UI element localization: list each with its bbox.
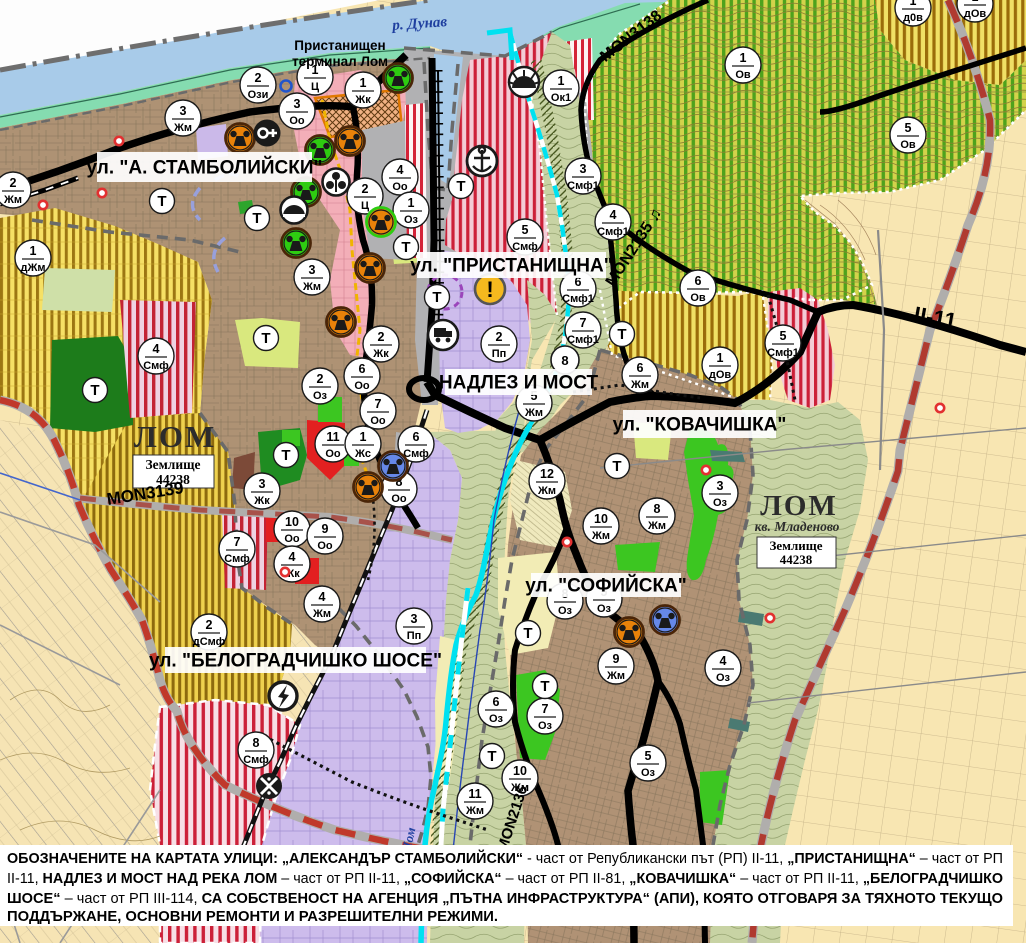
svg-text:Оо: Оо [354, 380, 370, 392]
svg-text:5: 5 [645, 749, 652, 763]
svg-text:2: 2 [362, 182, 369, 196]
svg-text:Т: Т [261, 330, 270, 347]
svg-text:Оз: Оз [538, 720, 553, 732]
svg-text:6: 6 [637, 361, 644, 375]
svg-text:Ц: Ц [311, 81, 319, 93]
svg-text:Жк: Жк [354, 94, 371, 106]
svg-text:1: 1 [360, 76, 367, 90]
svg-text:Смф1: Смф1 [567, 334, 599, 346]
svg-text:8: 8 [253, 736, 260, 750]
svg-text:дОв: дОв [709, 369, 732, 381]
svg-text:4: 4 [153, 342, 160, 356]
svg-text:3: 3 [259, 477, 266, 491]
svg-text:Т: Т [612, 458, 621, 475]
svg-text:Оз: Оз [313, 390, 328, 402]
svg-text:Смф: Смф [224, 553, 250, 565]
svg-text:Смф1: Смф1 [567, 180, 599, 192]
svg-text:Т: Т [281, 447, 290, 464]
svg-text:ул. "А. СТАМБОЛИЙСКИ": ул. "А. СТАМБОЛИЙСКИ" [86, 156, 322, 178]
svg-text:1: 1 [408, 196, 415, 210]
svg-text:Жм: Жм [302, 281, 321, 293]
svg-text:д0в: д0в [903, 12, 923, 24]
svg-text:Землище: Землище [145, 457, 200, 472]
svg-text:Жк: Жк [372, 348, 389, 360]
svg-text:дСмф: дСмф [193, 636, 226, 648]
svg-text:Оз: Оз [489, 713, 504, 725]
svg-text:Пп: Пп [492, 348, 507, 360]
svg-text:Оо: Оо [392, 181, 408, 193]
svg-text:5: 5 [780, 329, 787, 343]
svg-text:Оо: Оо [370, 415, 386, 427]
svg-text:ул. "БЕЛОГРАДЧИШКО ШОСЕ": ул. "БЕЛОГРАДЧИШКО ШОСЕ" [149, 650, 442, 671]
svg-text:2: 2 [317, 372, 324, 386]
svg-text:ОБОЗНАЧЕНИТЕ НА КАРТАТА УЛИЦИ:: ОБОЗНАЧЕНИТЕ НА КАРТАТА УЛИЦИ: „АЛЕКСАНД… [7, 849, 1003, 867]
svg-text:ШОСЕ“ – част от РП III-114, СА: ШОСЕ“ – част от РП III-114, СА СОБСТВЕНО… [7, 891, 1003, 907]
svg-text:Оо: Оо [289, 115, 305, 127]
svg-text:Жм: Жм [606, 670, 625, 682]
svg-text:Жм: Жм [173, 122, 192, 134]
svg-text:Т: Т [523, 625, 532, 642]
svg-text:Жм: Жм [591, 530, 610, 542]
svg-text:ул. "СОФИЙСКА": ул. "СОФИЙСКА" [525, 574, 687, 596]
svg-text:!: ! [486, 277, 493, 302]
svg-text:Смф1: Смф1 [767, 347, 799, 359]
svg-text:5: 5 [522, 223, 529, 237]
svg-text:4: 4 [397, 163, 404, 177]
svg-text:2: 2 [10, 176, 17, 190]
svg-text:4: 4 [319, 590, 326, 604]
svg-text:1: 1 [30, 244, 37, 258]
svg-text:Пп: Пп [407, 630, 422, 642]
svg-text:Смф: Смф [243, 754, 269, 766]
svg-text:12: 12 [540, 467, 554, 481]
svg-text:1: 1 [972, 0, 979, 4]
svg-text:Смф: Смф [143, 360, 169, 372]
svg-text:Оо: Оо [317, 540, 333, 552]
svg-text:Оз: Оз [713, 497, 728, 509]
svg-text:Жм: Жм [537, 485, 556, 497]
svg-text:Т: Т [617, 326, 626, 343]
svg-text:7: 7 [542, 702, 549, 716]
svg-text:Смф1: Смф1 [562, 293, 594, 305]
svg-text:10: 10 [513, 764, 527, 778]
svg-text:8: 8 [654, 502, 661, 516]
svg-text:кв. Младеново: кв. Младеново [755, 519, 840, 534]
svg-text:Ов: Ов [690, 292, 706, 304]
svg-text:Оз: Оз [597, 603, 612, 615]
svg-text:Смф: Смф [512, 241, 538, 253]
svg-text:1: 1 [558, 74, 565, 88]
svg-text:2: 2 [206, 618, 213, 632]
svg-text:Жс: Жс [354, 448, 371, 460]
svg-text:1: 1 [910, 0, 917, 8]
svg-text:ул. "КОВАЧИШКА": ул. "КОВАЧИШКА" [613, 414, 787, 435]
svg-text:Оо: Оо [325, 448, 341, 460]
svg-text:II-11, НАДЛЕЗ И МОСТ НАД РЕКА: II-11, НАДЛЕЗ И МОСТ НАД РЕКА ЛОМ – част… [7, 869, 1003, 887]
svg-text:Ов: Ов [735, 69, 751, 81]
svg-text:Оз: Оз [404, 214, 419, 226]
svg-text:4: 4 [289, 550, 296, 564]
svg-text:Оз: Оз [558, 605, 573, 617]
svg-text:Т: Т [157, 193, 166, 210]
svg-text:Жк: Жк [253, 495, 270, 507]
svg-text:10: 10 [594, 512, 608, 526]
svg-text:Ок1: Ок1 [551, 92, 571, 104]
svg-text:Ози: Ози [248, 89, 269, 101]
svg-text:Жм: Жм [647, 520, 666, 532]
svg-text:Смф1: Смф1 [597, 226, 629, 238]
svg-text:3: 3 [580, 162, 587, 176]
svg-text:Жм: Жм [465, 805, 484, 817]
svg-text:ул. "ПРИСТАНИЩНА": ул. "ПРИСТАНИЩНА" [410, 255, 613, 276]
svg-text:Т: Т [432, 289, 441, 306]
svg-text:Землище: Землище [769, 538, 822, 553]
svg-text:6: 6 [413, 430, 420, 444]
svg-text:Смф: Смф [403, 448, 429, 460]
svg-text:Ов: Ов [900, 139, 916, 151]
svg-text:Жм: Жм [630, 379, 649, 391]
svg-text:1: 1 [360, 430, 367, 444]
svg-text:ЛОМ: ЛОМ [760, 490, 838, 522]
svg-text:11: 11 [326, 430, 339, 444]
svg-text:дОв: дОв [964, 8, 987, 20]
svg-text:2: 2 [378, 330, 385, 344]
svg-text:7: 7 [234, 535, 241, 549]
svg-text:4: 4 [720, 654, 727, 668]
svg-text:ПОДДЪРЖАНЕ, ОСНОВНИ РЕМОНТИ И: ПОДДЪРЖАНЕ, ОСНОВНИ РЕМОНТИ И РАЗРЕШИТЕЛ… [7, 909, 498, 925]
svg-text:3: 3 [294, 97, 301, 111]
svg-text:7: 7 [375, 397, 382, 411]
svg-text:7: 7 [580, 316, 587, 330]
svg-text:терминал Лом: терминал Лом [292, 54, 388, 69]
svg-text:Оо: Оо [391, 493, 407, 505]
svg-text:4: 4 [610, 208, 617, 222]
svg-text:10: 10 [285, 515, 299, 529]
svg-text:ЛОМ: ЛОМ [134, 419, 216, 454]
svg-text:5: 5 [905, 121, 912, 135]
svg-text:9: 9 [322, 522, 329, 536]
svg-text:8: 8 [561, 353, 568, 368]
svg-text:Оз: Оз [641, 767, 656, 779]
svg-text:6: 6 [359, 362, 366, 376]
svg-text:Жм: Жм [3, 194, 22, 206]
svg-text:Т: Т [456, 178, 465, 195]
svg-text:дЖм: дЖм [20, 262, 45, 274]
svg-text:Жм: Жм [524, 407, 543, 419]
svg-text:9: 9 [613, 652, 620, 666]
svg-text:Ц: Ц [361, 200, 369, 212]
svg-text:Т: Т [487, 748, 496, 765]
svg-text:44238: 44238 [780, 552, 813, 567]
svg-text:Т: Т [401, 239, 410, 256]
svg-text:Т: Т [90, 382, 99, 399]
svg-text:2: 2 [255, 71, 262, 85]
svg-text:3: 3 [180, 104, 187, 118]
svg-text:3: 3 [717, 479, 724, 493]
svg-text:6: 6 [493, 695, 500, 709]
svg-text:НАДЛЕЗ И МОСТ: НАДЛЕЗ И МОСТ [439, 372, 599, 393]
svg-text:2: 2 [496, 330, 503, 344]
svg-text:Пристанищен: Пристанищен [294, 38, 385, 53]
svg-text:11: 11 [468, 787, 481, 801]
svg-text:Т: Т [540, 678, 549, 695]
svg-text:Жм: Жм [312, 608, 331, 620]
svg-text:3: 3 [309, 263, 316, 277]
svg-text:Оз: Оз [716, 672, 731, 684]
svg-text:3: 3 [411, 612, 418, 626]
svg-text:6: 6 [695, 274, 702, 288]
svg-text:1: 1 [717, 351, 724, 365]
svg-text:Т: Т [252, 210, 261, 227]
svg-text:Оо: Оо [284, 533, 300, 545]
svg-text:1: 1 [740, 51, 747, 65]
